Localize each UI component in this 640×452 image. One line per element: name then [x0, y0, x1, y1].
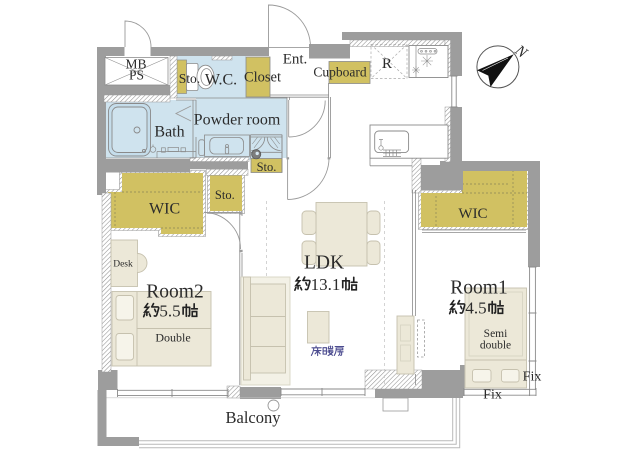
- svg-text:13.1: 13.1: [311, 275, 341, 294]
- svg-text:Fix: Fix: [483, 388, 502, 403]
- svg-text:Sto.: Sto.: [257, 160, 277, 174]
- svg-text:Room1: Room1: [450, 278, 507, 299]
- svg-text:WIC: WIC: [149, 201, 180, 218]
- svg-text:PS: PS: [129, 67, 144, 82]
- svg-text:R: R: [382, 56, 392, 72]
- svg-text:5.5: 5.5: [159, 302, 180, 321]
- svg-text:Double: Double: [155, 331, 190, 345]
- svg-text:Balcony: Balcony: [226, 408, 282, 427]
- svg-text:Bath: Bath: [154, 124, 184, 141]
- svg-text:Ent.: Ent.: [283, 52, 308, 68]
- svg-text:W.C.: W.C.: [205, 72, 237, 89]
- svg-text:Sto.: Sto.: [179, 71, 200, 86]
- svg-text:4.5: 4.5: [465, 299, 486, 318]
- svg-text:Desk: Desk: [113, 260, 133, 270]
- svg-text:WIC: WIC: [458, 206, 487, 222]
- svg-text:Room2: Room2: [146, 282, 203, 303]
- svg-text:Powder room: Powder room: [194, 112, 281, 129]
- svg-text:Closet: Closet: [244, 70, 281, 86]
- svg-text:Fix: Fix: [523, 370, 542, 385]
- svg-text:Semi: Semi: [484, 328, 508, 340]
- svg-text:Cupboard: Cupboard: [313, 65, 366, 80]
- svg-text:Sto.: Sto.: [215, 188, 235, 202]
- svg-text:double: double: [480, 340, 511, 352]
- svg-text:LDK: LDK: [304, 253, 344, 274]
